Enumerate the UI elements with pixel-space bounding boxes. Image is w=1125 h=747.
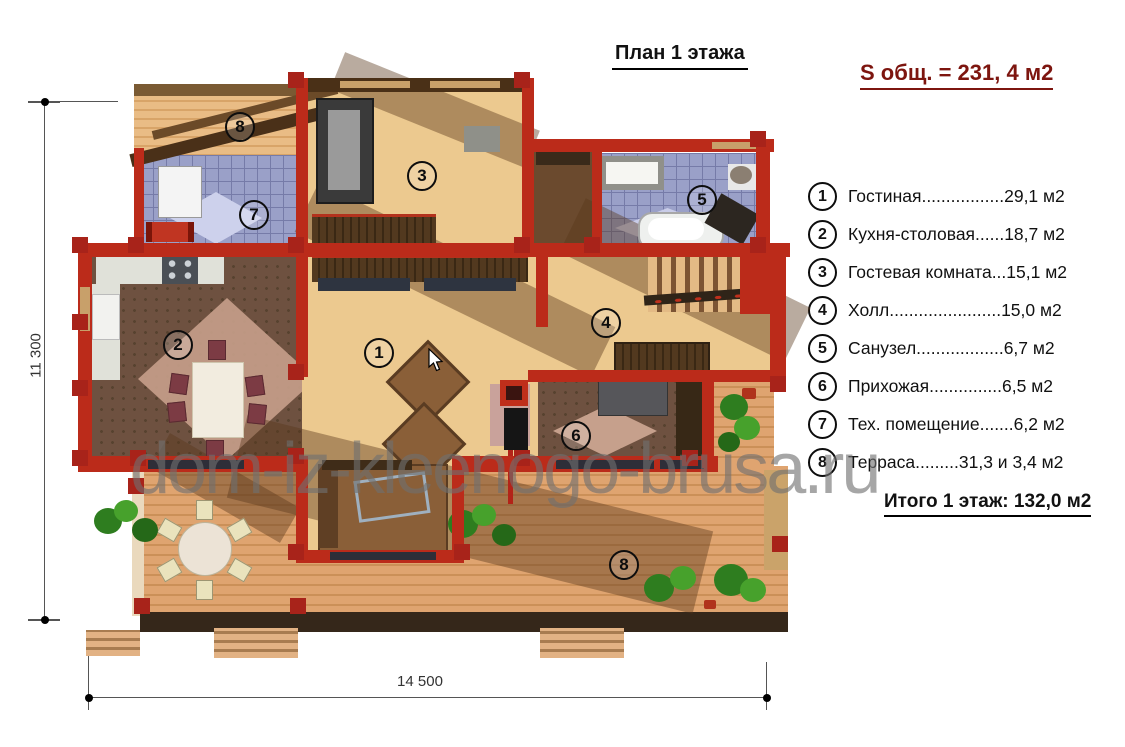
- terrace-table: [178, 522, 232, 576]
- bathtub-basin: [648, 218, 704, 240]
- legend-item: 1 Гостиная.................29,1 м2: [808, 182, 1118, 211]
- dimension-marker: [41, 98, 49, 106]
- legend-item: 4 Холл.......................15,0 м2: [808, 296, 1118, 325]
- log-end: [72, 380, 88, 396]
- wall: [528, 370, 786, 382]
- terrace-steps-center: [540, 628, 624, 658]
- legend-num: 3: [808, 258, 837, 287]
- dimension-marker: [85, 694, 93, 702]
- legend-item: 8 Терраса.........31,3 и 3,4 м2: [808, 448, 1118, 477]
- plant: [92, 500, 162, 555]
- stove: [162, 254, 198, 284]
- room-badge-tech: 7: [239, 200, 269, 230]
- tech-red-unit: [146, 222, 194, 242]
- wall: [592, 150, 602, 250]
- log-end: [290, 598, 306, 614]
- legend-text: Санузел..................6,7 м2: [848, 338, 1055, 359]
- living-radiator: [424, 278, 516, 291]
- legend-num: 2: [808, 220, 837, 249]
- plant: [716, 388, 768, 458]
- terrace-steps-corner: [86, 630, 140, 656]
- log-end: [288, 448, 304, 464]
- floor-total-label: Итого 1 этаж: 132,0 м2: [884, 491, 1091, 517]
- dimension-label-width: 14 500: [360, 673, 480, 690]
- terrace-chair: [196, 500, 213, 520]
- log-end: [128, 237, 144, 253]
- room-badge-hall: 4: [591, 308, 621, 338]
- terrace-right-edge: [764, 470, 788, 570]
- log-end: [514, 237, 530, 253]
- dining-chair: [208, 340, 226, 360]
- dimension-extension: [766, 662, 767, 710]
- log-end: [682, 450, 698, 466]
- legend-item: 3 Гостевая комната...15,1 м2: [808, 258, 1118, 287]
- log-end: [72, 450, 88, 466]
- dimension-label-height: 11 300: [28, 306, 45, 406]
- tech-appliance: [158, 166, 202, 218]
- kitchen-counter: [96, 254, 224, 284]
- log-end: [770, 376, 786, 392]
- legend-text: Гостиная.................29,1 м2: [848, 186, 1065, 207]
- legend-text: Тех. помещение.......6,2 м2: [848, 414, 1065, 435]
- legend: 1 Гостиная.................29,1 м2 2 Кух…: [808, 182, 1118, 486]
- legend-item: 2 Кухня-столовая......18,7 м2: [808, 220, 1118, 249]
- log-end: [514, 72, 530, 88]
- legend-text: Кухня-столовая......18,7 м2: [848, 224, 1065, 245]
- window: [148, 460, 244, 469]
- dimension-line-horizontal: [88, 697, 766, 698]
- room-badge-entry: 6: [561, 421, 591, 451]
- log-end: [130, 450, 146, 466]
- log-end: [288, 237, 304, 253]
- legend-item: 7 Тех. помещение.......6,2 м2: [808, 410, 1118, 439]
- window: [430, 81, 500, 88]
- legend-item: 5 Санузел..................6,7 м2: [808, 334, 1118, 363]
- log-end: [454, 544, 470, 560]
- room-badge-living: 1: [364, 338, 394, 368]
- log-end: [128, 478, 144, 494]
- legend-item: 6 Прихожая...............6,5 м2: [808, 372, 1118, 401]
- room-badge-terrace-bottom: 8: [609, 550, 639, 580]
- wall: [756, 139, 770, 253]
- floor-plan: 1 2 3 4 5 6 7 8 8: [0, 0, 800, 747]
- legend-num: 8: [808, 448, 837, 477]
- log-end: [72, 314, 88, 330]
- legend-num: 1: [808, 182, 837, 211]
- room-badge-bath: 5: [687, 185, 717, 215]
- bath-counter-top: [606, 162, 658, 184]
- log-end: [772, 536, 788, 552]
- log-end: [288, 364, 304, 380]
- wall: [296, 78, 308, 377]
- stair-landing-wall: [740, 250, 774, 314]
- log-end: [750, 237, 766, 253]
- legend-num: 6: [808, 372, 837, 401]
- wall: [522, 78, 534, 257]
- legend-text: Холл.......................15,0 м2: [848, 300, 1062, 321]
- fridge: [92, 294, 120, 340]
- log-end: [288, 544, 304, 560]
- log-end: [72, 237, 88, 253]
- dining-chair: [247, 403, 267, 425]
- plant: [640, 560, 770, 615]
- log-end: [288, 72, 304, 88]
- legend-text: Прихожая...............6,5 м2: [848, 376, 1053, 397]
- dimension-marker: [41, 616, 49, 624]
- total-area-label: S общ. = 231, 4 м2: [860, 60, 1053, 90]
- guest-wardrobe-interior: [328, 110, 360, 190]
- wall: [536, 243, 548, 327]
- wall: [78, 243, 92, 468]
- log-end: [584, 237, 600, 253]
- wall: [702, 370, 714, 468]
- dining-chair: [245, 375, 266, 397]
- room-badge-kitchen: 2: [163, 330, 193, 360]
- legend-num: 7: [808, 410, 837, 439]
- guest-cabinet: [464, 126, 500, 152]
- log-end: [750, 131, 766, 147]
- sofa-back: [318, 464, 338, 548]
- legend-text: Терраса.........31,3 и 3,4 м2: [848, 452, 1063, 473]
- room-badge-terrace-top: 8: [225, 112, 255, 142]
- toilet-seat: [730, 166, 752, 184]
- fireplace-core: [506, 386, 522, 400]
- room-badge-guest: 3: [407, 161, 437, 191]
- log-end: [134, 598, 150, 614]
- window: [556, 460, 654, 469]
- log-end: [514, 450, 530, 466]
- sofa-top-bar: [322, 460, 412, 470]
- window: [330, 552, 436, 560]
- legend-text: Гостевая комната...15,1 м2: [848, 262, 1067, 283]
- dining-chair: [167, 401, 187, 423]
- window: [340, 81, 410, 88]
- entry-bench: [598, 380, 668, 416]
- dining-chair: [169, 373, 190, 395]
- living-radiator: [318, 278, 410, 291]
- wall: [78, 243, 790, 257]
- terrace-chair: [196, 580, 213, 600]
- dining-table: [192, 362, 244, 438]
- mouse-cursor-icon: [428, 348, 445, 377]
- page-title: План 1 этажа: [612, 42, 748, 70]
- tv-panel: [504, 408, 528, 450]
- dimension-marker: [763, 694, 771, 702]
- legend-num: 5: [808, 334, 837, 363]
- terrace-steps-left: [214, 628, 298, 658]
- legend-num: 4: [808, 296, 837, 325]
